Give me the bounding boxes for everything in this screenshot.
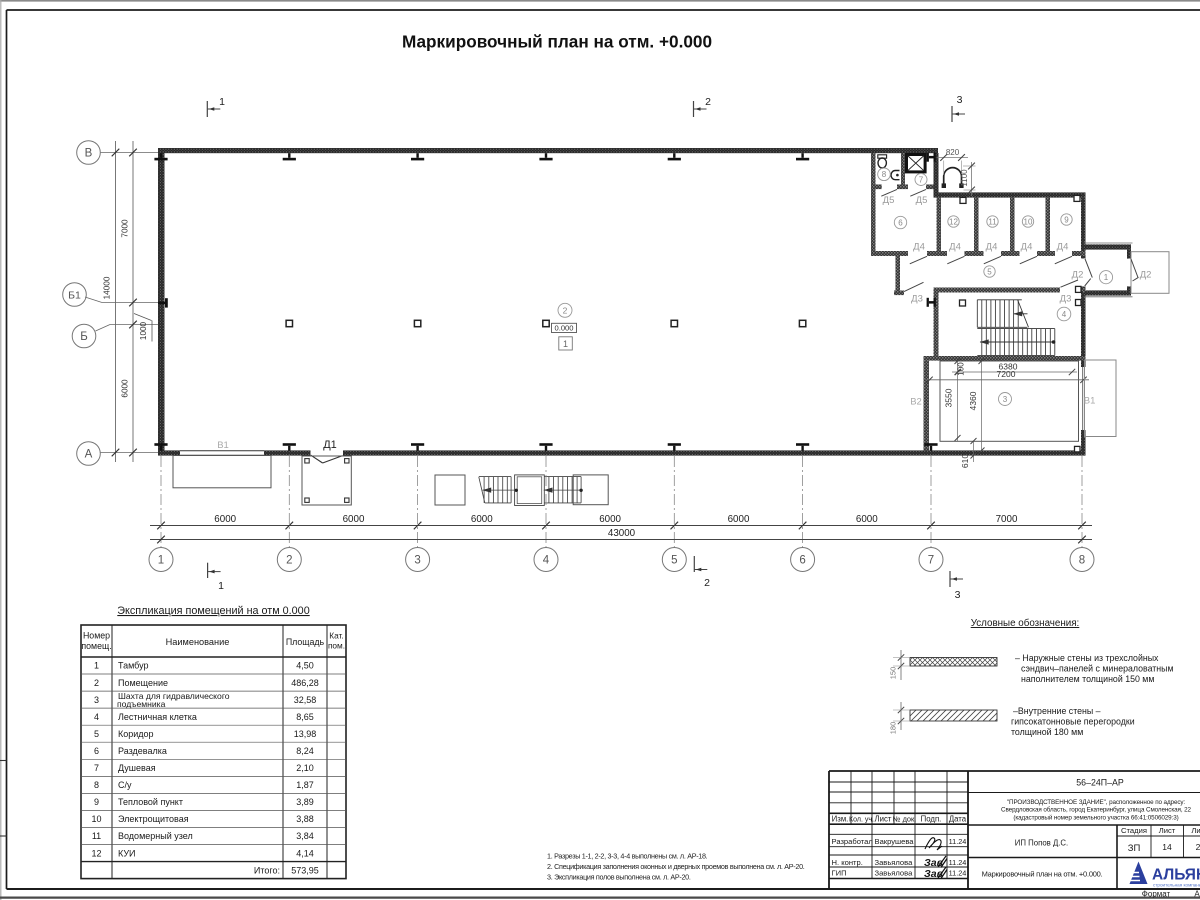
- svg-text:Подп.: Подп.: [921, 814, 942, 823]
- svg-text:7: 7: [928, 555, 934, 567]
- svg-text:Б: Б: [80, 331, 88, 343]
- svg-text:С/у: С/у: [118, 780, 132, 790]
- svg-text:10: 10: [91, 814, 101, 824]
- svg-text:2,10: 2,10: [296, 763, 314, 773]
- svg-text:3550: 3550: [944, 388, 954, 407]
- svg-text:В: В: [85, 148, 93, 160]
- svg-text:–Внутренние стены –: –Внутренние стены –: [1013, 706, 1101, 716]
- svg-text:Д5: Д5: [883, 195, 895, 206]
- svg-text:2: 2: [286, 555, 292, 567]
- svg-text:Б1: Б1: [68, 290, 81, 302]
- svg-text:5: 5: [671, 555, 677, 567]
- svg-text:6: 6: [799, 555, 805, 567]
- svg-text:Д2: Д2: [1072, 270, 1084, 281]
- svg-text:"ПРОИЗВОДСТВЕННОЕ ЗДАНИЕ", рас: "ПРОИЗВОДСТВЕННОЕ ЗДАНИЕ", расположенное…: [1007, 799, 1186, 806]
- svg-text:7000: 7000: [996, 514, 1018, 525]
- svg-text:12: 12: [91, 848, 101, 858]
- svg-text:610: 610: [960, 454, 970, 468]
- svg-text:6000: 6000: [471, 514, 493, 525]
- svg-text:8,24: 8,24: [296, 746, 314, 756]
- svg-text:6000: 6000: [728, 514, 750, 525]
- svg-text:Тепловой пункт: Тепловой пункт: [118, 797, 183, 807]
- svg-text:1100: 1100: [960, 169, 969, 187]
- svg-text:Д4: Д4: [949, 242, 961, 253]
- svg-text:Свердловская область, город Ек: Свердловская область, город Екатеринбург…: [1001, 806, 1191, 814]
- svg-text:14000: 14000: [103, 276, 112, 299]
- svg-text:2: 2: [704, 577, 710, 589]
- svg-text:1: 1: [94, 661, 99, 671]
- svg-text:Раздевалка: Раздевалка: [118, 746, 167, 756]
- svg-text:А: А: [85, 449, 93, 461]
- svg-text:573,95: 573,95: [291, 865, 319, 875]
- svg-text:5: 5: [987, 267, 992, 276]
- svg-text:2: 2: [705, 96, 711, 108]
- svg-text:Д1: Д1: [323, 439, 337, 451]
- svg-text:100: 100: [957, 362, 966, 376]
- svg-text:43000: 43000: [608, 528, 636, 539]
- svg-text:1: 1: [1104, 273, 1109, 282]
- svg-text:1: 1: [218, 580, 224, 592]
- svg-text:КУИ: КУИ: [118, 848, 136, 858]
- svg-text:11: 11: [92, 831, 101, 841]
- svg-text:Электрощитовая: Электрощитовая: [118, 814, 189, 824]
- svg-text:Площадь: Площадь: [286, 637, 325, 647]
- svg-text:Номер: Номер: [83, 631, 110, 641]
- svg-text:3. Экспликация полов выполнена: 3. Экспликация полов выполнена см. л. АР…: [547, 873, 691, 882]
- svg-text:Д3: Д3: [1060, 294, 1072, 305]
- svg-text:Наименование: Наименование: [166, 637, 230, 647]
- svg-text:Маркировочный план на отм. +0.: Маркировочный план на отм. +0.000: [402, 32, 712, 52]
- svg-text:6000: 6000: [214, 514, 236, 525]
- svg-text:6000: 6000: [120, 379, 129, 398]
- svg-text:(кадастровый номер земельного: (кадастровый номер земельного участка 66…: [1013, 813, 1178, 821]
- svg-text:Формат: Формат: [1142, 889, 1171, 898]
- svg-text:Изм.: Изм.: [832, 814, 849, 823]
- svg-text:Кол. уч.: Кол. уч.: [849, 816, 874, 823]
- svg-text:– Наружные стены из трехслойны: – Наружные стены из трехслойных: [1015, 653, 1159, 663]
- svg-text:Кат.: Кат.: [329, 631, 343, 641]
- svg-text:пом.: пом.: [328, 641, 345, 651]
- svg-text:Вакрушева: Вакрушева: [875, 837, 915, 846]
- svg-text:наполнителем толщиной 150 мм: наполнителем толщиной 150 мм: [1021, 674, 1154, 684]
- svg-text:В1: В1: [217, 440, 229, 451]
- svg-text:Тамбур: Тамбур: [118, 661, 149, 671]
- svg-text:7000: 7000: [120, 219, 129, 238]
- svg-text:150: 150: [889, 667, 898, 680]
- svg-text:3: 3: [1003, 395, 1008, 404]
- svg-text:Д4: Д4: [1021, 242, 1033, 253]
- svg-text:Д4: Д4: [986, 242, 998, 253]
- svg-text:3,89: 3,89: [296, 797, 314, 807]
- svg-text:0.000: 0.000: [554, 324, 573, 333]
- svg-text:ГИП: ГИП: [832, 868, 847, 877]
- svg-text:5: 5: [94, 729, 99, 739]
- svg-text:гипсокатонновые перегородки: гипсокатонновые перегородки: [1011, 717, 1135, 727]
- svg-text:3: 3: [414, 555, 420, 567]
- svg-text:1: 1: [158, 555, 164, 567]
- svg-text:Д2: Д2: [1140, 270, 1152, 281]
- svg-text:Разработал: Разработал: [832, 837, 873, 846]
- svg-text:3: 3: [94, 695, 99, 705]
- svg-text:4: 4: [543, 555, 550, 567]
- svg-text:1: 1: [219, 96, 225, 108]
- svg-text:14: 14: [1162, 842, 1172, 852]
- svg-text:1,87: 1,87: [296, 780, 314, 790]
- svg-text:Душевая: Душевая: [118, 763, 156, 773]
- svg-text:2: 2: [1196, 842, 1200, 852]
- svg-text:3: 3: [955, 589, 961, 601]
- svg-text:строительная компания: строительная компания: [1153, 883, 1200, 888]
- svg-text:Условные обозначения:: Условные обозначения:: [971, 618, 1080, 629]
- svg-text:486,28: 486,28: [291, 678, 319, 688]
- svg-text:2: 2: [563, 305, 568, 315]
- svg-text:4: 4: [94, 712, 99, 722]
- svg-text:Водомерный узел: Водомерный узел: [118, 831, 193, 841]
- svg-text:8: 8: [882, 170, 887, 179]
- svg-text:7200: 7200: [997, 369, 1016, 379]
- svg-text:11.24: 11.24: [949, 858, 967, 867]
- svg-text:Завьялова: Завьялова: [875, 868, 914, 877]
- svg-text:4: 4: [1062, 310, 1067, 319]
- svg-text:12: 12: [949, 217, 958, 226]
- svg-text:10: 10: [1024, 217, 1033, 226]
- svg-text:ИП Попов Д.С.: ИП Попов Д.С.: [1015, 839, 1068, 848]
- svg-text:32,58: 32,58: [294, 695, 317, 705]
- svg-text:Д3: Д3: [911, 294, 923, 305]
- svg-text:В1: В1: [1084, 396, 1096, 407]
- svg-text:9: 9: [1064, 215, 1069, 224]
- svg-text:1: 1: [563, 339, 568, 349]
- svg-text:Дата: Дата: [949, 814, 967, 823]
- svg-text:Завьялова: Завьялова: [875, 858, 914, 867]
- svg-text:№ док.: № док.: [893, 814, 917, 823]
- svg-text:Итого:: Итого:: [254, 865, 280, 875]
- svg-text:11.24: 11.24: [949, 868, 967, 877]
- svg-text:1000: 1000: [139, 321, 148, 340]
- svg-text:Н. контр.: Н. контр.: [832, 858, 863, 867]
- svg-text:3: 3: [957, 94, 963, 106]
- svg-text:6: 6: [94, 746, 99, 756]
- svg-text:подъемника: подъемника: [117, 699, 166, 709]
- svg-text:2: 2: [94, 678, 99, 688]
- svg-text:Ли: Ли: [1191, 826, 1200, 835]
- svg-text:820: 820: [946, 148, 960, 157]
- svg-text:Лист: Лист: [1159, 826, 1176, 835]
- svg-text:толщиной 180 мм: толщиной 180 мм: [1011, 727, 1083, 737]
- svg-text:6000: 6000: [856, 514, 878, 525]
- svg-text:8,65: 8,65: [296, 712, 314, 722]
- svg-text:1. Разрезы 1-1, 2-2, 3-3, 4-4: 1. Разрезы 1-1, 2-2, 3-3, 4-4 выполнены …: [547, 852, 708, 861]
- svg-text:56–24П–АР: 56–24П–АР: [1076, 778, 1124, 788]
- svg-text:4,14: 4,14: [296, 848, 314, 858]
- svg-text:ЗП: ЗП: [1128, 843, 1141, 854]
- svg-text:2. Спецификация заполнения око: 2. Спецификация заполнения оконных и две…: [547, 862, 805, 871]
- svg-text:АЛЬЯНС: АЛЬЯНС: [1152, 867, 1200, 884]
- svg-text:180: 180: [889, 722, 898, 735]
- svg-text:3,84: 3,84: [296, 831, 314, 841]
- svg-text:Д5: Д5: [916, 195, 928, 206]
- svg-text:Коридор: Коридор: [118, 729, 154, 739]
- svg-text:В2: В2: [910, 397, 922, 408]
- svg-text:7: 7: [94, 763, 99, 773]
- svg-text:9: 9: [94, 797, 99, 807]
- svg-text:4,50: 4,50: [296, 661, 314, 671]
- svg-text:сэндвич–панелей с минераловатн: сэндвич–панелей с минераловатным: [1021, 664, 1174, 674]
- svg-text:7: 7: [919, 175, 924, 184]
- svg-text:11.24: 11.24: [949, 837, 967, 846]
- svg-text:8: 8: [94, 780, 99, 790]
- svg-text:4360: 4360: [968, 391, 978, 410]
- svg-text:6000: 6000: [599, 514, 621, 525]
- svg-text:Экспликация помещений на отм 0: Экспликация помещений на отм 0.000: [117, 605, 309, 617]
- svg-text:Стадия: Стадия: [1121, 826, 1147, 835]
- svg-text:Лестничная клетка: Лестничная клетка: [118, 712, 197, 722]
- svg-text:6000: 6000: [343, 514, 365, 525]
- svg-text:6: 6: [898, 218, 903, 227]
- svg-text:Помещение: Помещение: [118, 678, 168, 688]
- svg-text:Лист: Лист: [875, 814, 892, 823]
- svg-text:3,88: 3,88: [296, 814, 314, 824]
- svg-text:Маркировочный план на отм. +0.: Маркировочный план на отм. +0.000.: [982, 870, 1103, 879]
- svg-text:13,98: 13,98: [294, 729, 317, 739]
- svg-text:А: А: [1194, 889, 1200, 898]
- svg-text:8: 8: [1079, 555, 1085, 567]
- svg-text:Д4: Д4: [913, 242, 925, 253]
- svg-text:11: 11: [988, 217, 997, 226]
- svg-text:Д4: Д4: [1057, 242, 1069, 253]
- svg-text:помещ.: помещ.: [81, 641, 111, 651]
